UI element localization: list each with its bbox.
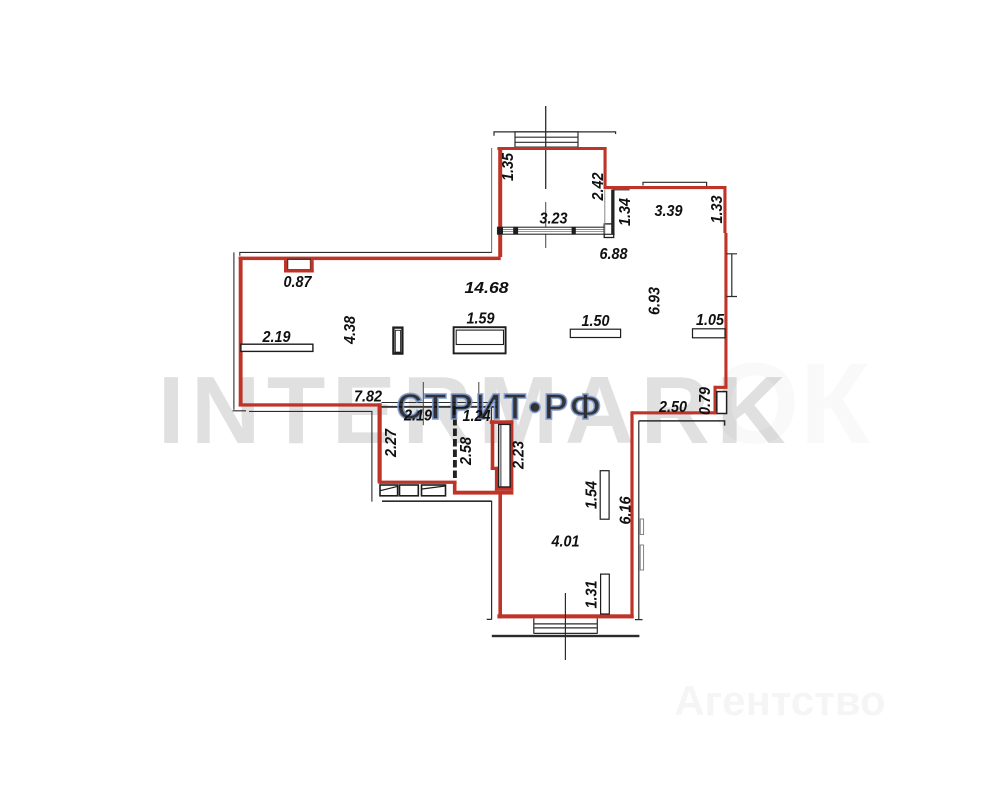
svg-text:1.31: 1.31 <box>584 580 601 608</box>
svg-text:1.54: 1.54 <box>584 481 601 509</box>
svg-text:2.27: 2.27 <box>383 428 400 458</box>
svg-text:2.19: 2.19 <box>403 408 432 425</box>
svg-text:2.42: 2.42 <box>590 172 607 201</box>
svg-text:0.79: 0.79 <box>697 387 714 415</box>
svg-text:3.39: 3.39 <box>655 203 683 220</box>
svg-text:6.88: 6.88 <box>600 246 628 263</box>
svg-text:6.16: 6.16 <box>617 496 634 524</box>
svg-text:1.24: 1.24 <box>463 408 491 425</box>
svg-text:7.82: 7.82 <box>354 389 382 406</box>
svg-text:Агентство: Агентство <box>674 677 885 724</box>
svg-text:6.93: 6.93 <box>647 287 664 315</box>
svg-text:1.33: 1.33 <box>709 195 726 223</box>
svg-text:2.19: 2.19 <box>262 329 291 346</box>
svg-text:4.38: 4.38 <box>342 316 359 345</box>
svg-text:3.23: 3.23 <box>540 211 568 228</box>
svg-text:0.87: 0.87 <box>284 274 313 291</box>
svg-text:2.58: 2.58 <box>458 437 475 466</box>
svg-text:2.23: 2.23 <box>511 441 528 470</box>
svg-text:1.59: 1.59 <box>467 311 495 328</box>
svg-text:ОК: ОК <box>710 340 870 468</box>
svg-text:1.35: 1.35 <box>500 152 517 181</box>
svg-text:4.01: 4.01 <box>551 533 580 550</box>
svg-text:14.68: 14.68 <box>465 280 509 297</box>
svg-text:1.50: 1.50 <box>582 313 610 330</box>
svg-text:1.34: 1.34 <box>617 198 634 226</box>
svg-text:1.05: 1.05 <box>696 312 725 329</box>
svg-text:2.50: 2.50 <box>658 399 687 416</box>
